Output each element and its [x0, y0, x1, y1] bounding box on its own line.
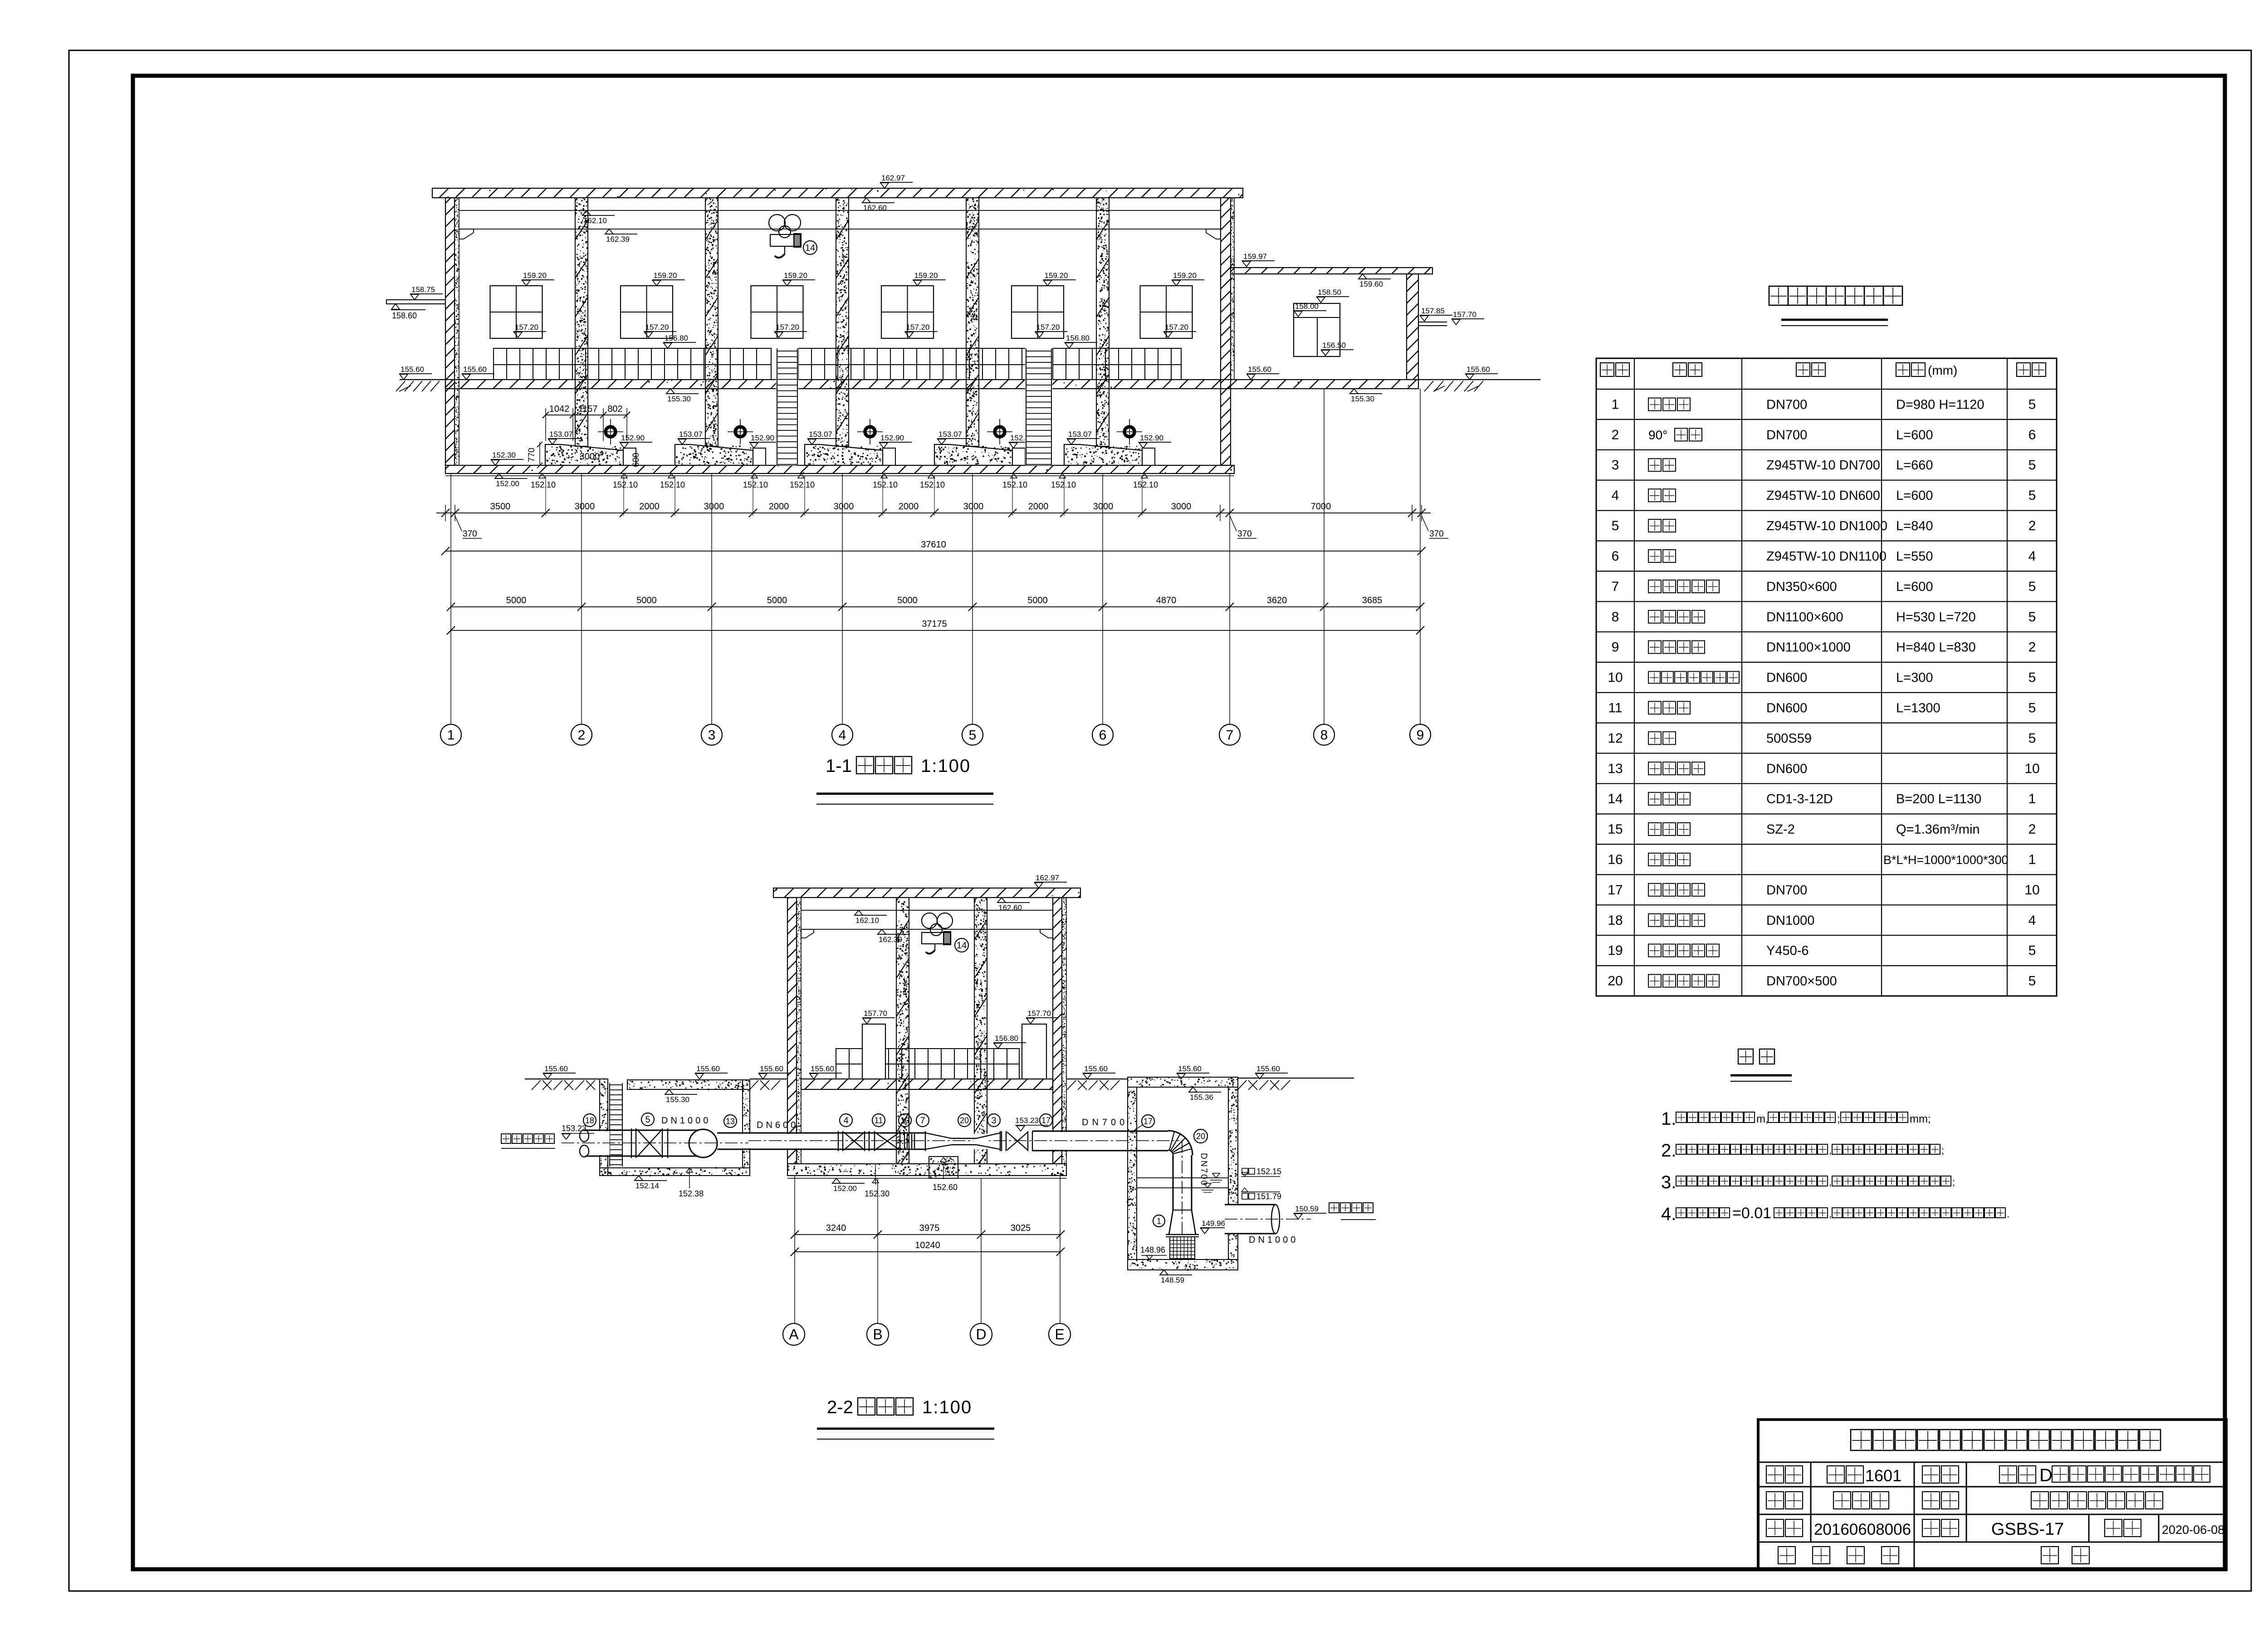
svg-text:155.30: 155.30 — [1351, 395, 1374, 403]
svg-text:5000: 5000 — [767, 595, 787, 605]
svg-text:3000: 3000 — [834, 502, 854, 512]
svg-text:3000: 3000 — [704, 502, 724, 512]
svg-text:770: 770 — [527, 448, 537, 462]
svg-text:7000: 7000 — [1311, 502, 1331, 512]
svg-text:3500: 3500 — [490, 502, 511, 512]
svg-text:37610: 37610 — [921, 540, 946, 550]
svg-text:152.10: 152.10 — [1002, 480, 1027, 489]
svg-text:158.50: 158.50 — [1318, 288, 1341, 297]
svg-text:600: 600 — [631, 453, 641, 467]
svg-text:1042: 1042 — [549, 404, 570, 414]
svg-text:3000: 3000 — [580, 452, 600, 462]
svg-text:152.10: 152.10 — [1133, 480, 1158, 489]
svg-text:153.07: 153.07 — [938, 430, 962, 439]
svg-text:2000: 2000 — [899, 502, 919, 512]
svg-text:157.70: 157.70 — [1027, 1009, 1051, 1018]
svg-text:5000: 5000 — [636, 595, 657, 605]
svg-text:157.20: 157.20 — [515, 323, 538, 332]
svg-text:37175: 37175 — [922, 619, 947, 629]
svg-text:155.60: 155.60 — [401, 365, 424, 374]
svg-text:2000: 2000 — [769, 502, 789, 512]
svg-text:8: 8 — [1320, 728, 1328, 743]
svg-text:157.85: 157.85 — [1421, 307, 1445, 315]
svg-text:1:100: 1:100 — [921, 756, 971, 776]
svg-text:157.20: 157.20 — [906, 323, 930, 332]
svg-text:3620: 3620 — [1267, 595, 1287, 605]
svg-text:162.10: 162.10 — [583, 216, 607, 225]
svg-text:152.90: 152.90 — [1140, 434, 1163, 442]
svg-text:6: 6 — [1099, 728, 1107, 743]
svg-text:159.20: 159.20 — [784, 271, 807, 280]
svg-text:370: 370 — [1237, 529, 1252, 539]
svg-text:157.70: 157.70 — [864, 1009, 887, 1018]
svg-text:159.20: 159.20 — [523, 271, 547, 280]
svg-text:3: 3 — [708, 728, 716, 743]
svg-text:9: 9 — [1417, 728, 1424, 743]
svg-text:159.20: 159.20 — [1045, 271, 1068, 280]
svg-text:155.30: 155.30 — [667, 395, 691, 403]
svg-text:5000: 5000 — [506, 595, 527, 605]
svg-text:153.07: 153.07 — [1068, 430, 1092, 439]
svg-text:3000: 3000 — [963, 502, 984, 512]
svg-text:5000: 5000 — [897, 595, 918, 605]
svg-text:152.10: 152.10 — [743, 480, 768, 489]
svg-text:5000: 5000 — [1027, 595, 1048, 605]
svg-text:152.10: 152.10 — [790, 480, 815, 489]
svg-text:159.20: 159.20 — [654, 271, 677, 280]
svg-text:157.20: 157.20 — [776, 323, 799, 332]
svg-text:157.70: 157.70 — [1453, 310, 1476, 319]
svg-text:14: 14 — [805, 243, 815, 253]
svg-text:153.07: 153.07 — [809, 430, 832, 439]
svg-text:158.00: 158.00 — [1295, 302, 1319, 311]
svg-text:153.07: 153.07 — [549, 430, 573, 439]
svg-text:152.30: 152.30 — [492, 451, 516, 459]
svg-text:3685: 3685 — [1362, 595, 1383, 605]
svg-text:156.50: 156.50 — [1322, 341, 1346, 350]
svg-text:1157: 1157 — [578, 404, 597, 414]
svg-text:152.10: 152.10 — [873, 480, 898, 489]
svg-text:4870: 4870 — [1156, 595, 1177, 605]
svg-text:1-1: 1-1 — [826, 756, 852, 776]
svg-text:2000: 2000 — [1028, 502, 1049, 512]
svg-text:3000: 3000 — [1093, 502, 1114, 512]
svg-text:7: 7 — [1226, 728, 1234, 743]
svg-text:156.80: 156.80 — [665, 334, 688, 342]
svg-text:152.00: 152.00 — [496, 479, 519, 488]
svg-text:5: 5 — [969, 728, 977, 743]
svg-text:2: 2 — [578, 728, 586, 743]
svg-text:1: 1 — [447, 728, 455, 743]
svg-text:157.20: 157.20 — [1165, 323, 1188, 332]
svg-text:157.20: 157.20 — [645, 323, 669, 332]
svg-text:152.10: 152.10 — [660, 480, 685, 489]
svg-text:153.07: 153.07 — [679, 430, 703, 439]
svg-text:152.10: 152.10 — [920, 480, 945, 489]
svg-text:159.20: 159.20 — [1173, 271, 1197, 280]
svg-text:162.60: 162.60 — [863, 204, 887, 212]
svg-text:157.20: 157.20 — [1036, 323, 1060, 332]
svg-text:152.10: 152.10 — [1051, 480, 1076, 489]
svg-text:370: 370 — [1429, 529, 1444, 539]
svg-text:152.90: 152.90 — [621, 434, 645, 442]
svg-text:155.60: 155.60 — [1466, 365, 1490, 374]
svg-text:4: 4 — [839, 728, 846, 743]
svg-text:3000: 3000 — [575, 502, 595, 512]
svg-text:155.60: 155.60 — [1248, 365, 1271, 374]
svg-text:158.75: 158.75 — [411, 285, 435, 294]
svg-text:159.20: 159.20 — [914, 271, 938, 280]
svg-text:156.80: 156.80 — [995, 1034, 1018, 1043]
svg-text:162.97: 162.97 — [881, 174, 905, 182]
svg-text:162.39: 162.39 — [606, 235, 630, 244]
svg-text:159.97: 159.97 — [1243, 252, 1267, 261]
svg-text:155.60: 155.60 — [463, 365, 487, 374]
svg-text:152.10: 152.10 — [613, 480, 638, 489]
svg-text:2000: 2000 — [639, 502, 660, 512]
svg-text:152.10: 152.10 — [531, 480, 556, 489]
svg-text:370: 370 — [463, 529, 477, 539]
svg-text:156.80: 156.80 — [1066, 334, 1090, 342]
svg-text:159.60: 159.60 — [1359, 280, 1383, 288]
svg-text:152.90: 152.90 — [880, 434, 904, 442]
svg-text:158.60: 158.60 — [392, 311, 417, 320]
svg-text:152.90: 152.90 — [751, 434, 774, 442]
svg-text:802: 802 — [607, 404, 622, 414]
svg-text:3000: 3000 — [1171, 502, 1192, 512]
